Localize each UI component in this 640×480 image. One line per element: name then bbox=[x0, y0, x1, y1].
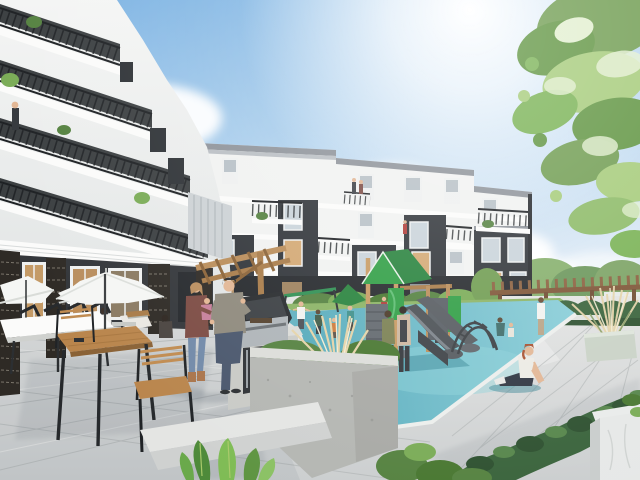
rendering bbox=[0, 0, 640, 480]
sunlight-overlay bbox=[0, 0, 640, 480]
rendering-canvas bbox=[0, 0, 640, 480]
